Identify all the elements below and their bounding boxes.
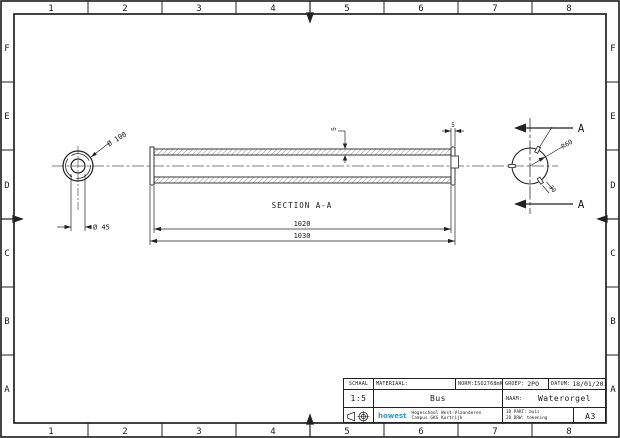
- row-label-right: D: [610, 181, 615, 191]
- naam-label: NAAM:: [503, 396, 522, 402]
- row-label-left: F: [4, 44, 9, 54]
- dim-text-inner-length: 1020: [294, 220, 311, 228]
- slot: [509, 164, 515, 167]
- howest-logo: howest: [374, 412, 407, 420]
- cut-label-bottom: A: [578, 198, 585, 211]
- col-label-top: 8: [566, 4, 571, 14]
- row-label-left: D: [4, 181, 9, 191]
- col-label-top: 4: [270, 4, 275, 14]
- section-label: SECTION A-A: [272, 201, 333, 210]
- title-block: SCHAAL MATERIAAL: NORM: ISO2768mK GROEP:…: [343, 378, 606, 423]
- part-name: Bus: [430, 394, 446, 403]
- row-label-left: A: [4, 385, 10, 395]
- datum-label: DATUM:: [551, 381, 570, 387]
- col-label-bottom: 3: [196, 427, 201, 437]
- materiaal-label: MATERIAAL:: [376, 381, 408, 387]
- col-label-bottom: 6: [418, 427, 423, 437]
- col-label-top: 6: [418, 4, 423, 14]
- row-label-left: B: [4, 317, 9, 327]
- tube-top-wall: [154, 149, 451, 155]
- row-label-right: C: [610, 249, 615, 259]
- schaal-value: 1:5: [351, 394, 367, 403]
- row-label-left: C: [4, 249, 9, 259]
- drawing-sheet: 1 2 3 4 5 6 7 8 1 2 3 4 5 6 7 8 F E D C …: [0, 0, 620, 438]
- col-label-top: 7: [492, 4, 497, 14]
- col-label-top: 3: [196, 4, 201, 14]
- col-label-bottom: 2: [122, 427, 127, 437]
- groep-label: GROEP:: [505, 381, 524, 387]
- norm-label: NORM:: [458, 381, 474, 387]
- dim-text-bore-diameter: Ø 45: [93, 224, 110, 232]
- row-label-left: E: [4, 112, 9, 122]
- dim-text-overall-length: 1030: [294, 232, 311, 240]
- naam-value: Waterorgel: [522, 394, 607, 403]
- sheet-frame: 1 2 3 4 5 6 7 8 1 2 3 4 5 6 7 8 F E D C …: [1, 1, 619, 437]
- drawing-canvas: 1 2 3 4 5 6 7 8 1 2 3 4 5 6 7 8 F E D C …: [0, 0, 620, 438]
- groep-value: 2PO: [527, 380, 539, 388]
- end-connector: [451, 156, 459, 168]
- col-label-bottom: 5: [344, 427, 349, 437]
- school-name: Hogeschool West-Vlaanderen Campus GKG Ko…: [412, 411, 482, 422]
- col-label-top: 1: [48, 4, 53, 14]
- dim-text-wall-thickness: 5: [330, 127, 338, 131]
- datum-value: 18/01/2016: [572, 380, 607, 388]
- row-label-right: A: [610, 385, 616, 395]
- col-label-bottom: 8: [566, 427, 571, 437]
- col-label-top: 2: [122, 4, 127, 14]
- schaal-label: SCHAAL: [349, 381, 368, 387]
- dim-text-end-width: 5: [451, 122, 455, 129]
- cut-label-top: A: [578, 122, 585, 135]
- tube-bottom-wall: [154, 177, 451, 183]
- norm-value: ISO2768mK: [474, 381, 503, 387]
- col-label-bottom: 7: [492, 427, 497, 437]
- row-label-right: F: [610, 44, 615, 54]
- cad-file-info: 3D PART: buis 2D DRW: tekening: [503, 410, 547, 422]
- school-line2: Campus GKG Kortrijk: [412, 416, 482, 421]
- first-angle-projection-icon: [346, 410, 372, 423]
- row-label-right: B: [610, 317, 615, 327]
- paper-format: A3: [585, 412, 596, 421]
- col-label-bottom: 4: [270, 427, 275, 437]
- cad-line2: 2D DRW: tekening: [506, 416, 547, 422]
- left-end-ring: [150, 147, 154, 185]
- col-label-top: 5: [344, 4, 349, 14]
- col-label-bottom: 1: [48, 427, 53, 437]
- row-label-right: E: [610, 112, 615, 122]
